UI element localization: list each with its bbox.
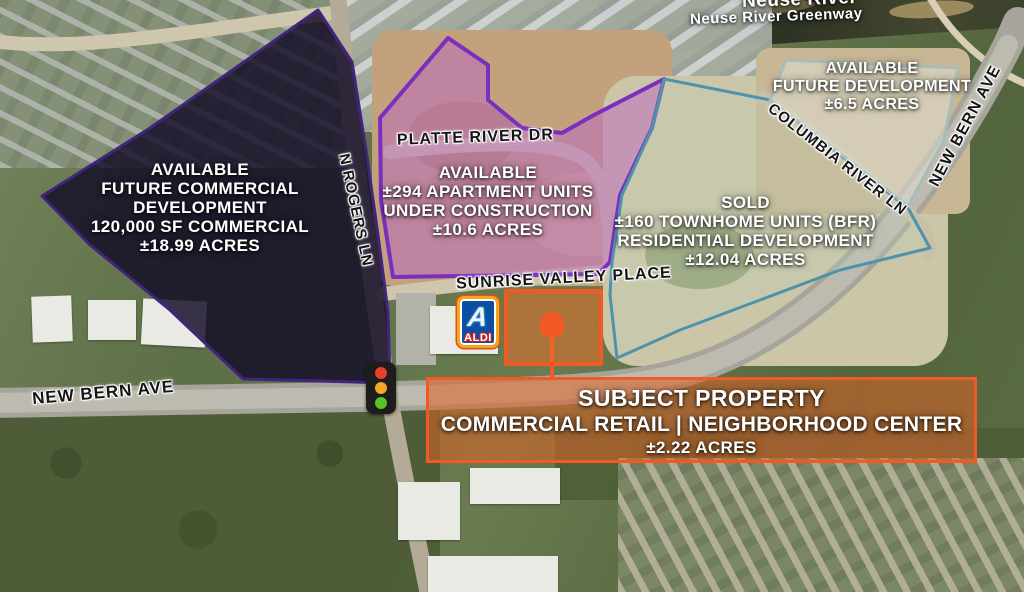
subject-title: SUBJECT PROPERTY	[429, 385, 974, 412]
traffic-light-red	[375, 367, 387, 379]
subject-marker-dot	[539, 312, 565, 338]
traffic-light-icon	[366, 362, 396, 414]
subject-use: COMMERCIAL RETAIL | NEIGHBORHOOD CENTER	[429, 412, 974, 437]
label-future-dev-northeast: AVAILABLE FUTURE DEVELOPMENT ±6.5 ACRES	[772, 60, 972, 114]
label-future-commercial: AVAILABLE FUTURE COMMERCIAL DEVELOPMENT …	[40, 160, 360, 255]
subject-property-callout: SUBJECT PROPERTY COMMERCIAL RETAIL | NEI…	[426, 377, 977, 463]
label-townhomes: SOLD ±160 TOWNHOME UNITS (BFR) RESIDENTI…	[608, 193, 883, 269]
traffic-light-green	[375, 397, 387, 409]
subject-acreage: ±2.22 ACRES	[429, 437, 974, 458]
aldi-a-icon: A	[467, 302, 490, 332]
aerial-site-map: SUBJECT PROPERTY COMMERCIAL RETAIL | NEI…	[0, 0, 1024, 592]
traffic-light-amber	[375, 382, 387, 394]
aldi-logo: A ALDI	[457, 296, 499, 348]
label-apartments: AVAILABLE ±294 APARTMENT UNITS UNDER CON…	[378, 163, 598, 239]
aldi-wordmark: ALDI	[464, 332, 492, 345]
